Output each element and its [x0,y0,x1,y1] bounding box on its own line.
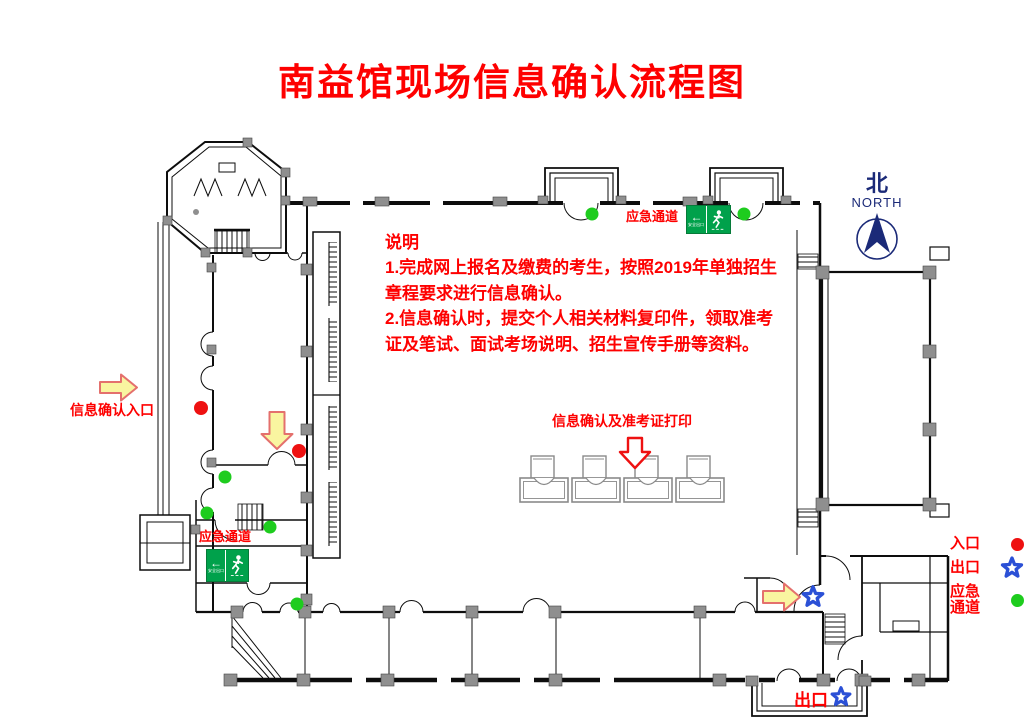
notes-body: 1.完成网上报名及缴费的考生，按照2019年单独招生 章程要求进行信息确认。 2… [385,255,785,357]
compass-icon [851,210,903,264]
exit-sign-top: ← 安全出口 [686,205,731,234]
north-indicator: 北 NORTH [842,172,912,269]
north-cn-label: 北 [842,172,912,196]
legend-exit-label: 出口 [950,560,980,576]
exit-star-marker [832,688,850,705]
confirmation-desks [520,456,724,502]
entrance-dot-marker [292,444,306,458]
exit-label-bottom: 出口 [794,686,828,711]
emergency-dot-marker [264,521,277,534]
exit-sign-text: 安全出口 [208,570,224,574]
exit-sign-arrow: ← 安全出口 [687,206,707,233]
left-arrow-icon: ← [210,557,222,569]
notes-block: 说明 1.完成网上报名及缴费的考生，按照2019年单独招生 章程要求进行信息确认… [385,231,785,357]
floor-plan-drawing [0,0,1024,724]
flowchart-page: 南益馆现场信息确认流程图 说明 1.完成网上报名及缴费的考生，按照2019年单独… [0,0,1024,724]
emergency-dot-marker [291,598,304,611]
desk [572,456,620,502]
exit-sign-text: 安全出口 [688,224,704,228]
running-man-icon [707,206,730,233]
entrance-arrow-icon [100,375,137,401]
page-title: 南益馆现场信息确认流程图 [0,52,1024,106]
left-arrow-icon: ← [690,211,702,223]
legend-entrance-label: 入口 [950,536,980,552]
legend-row-entrance: 入口 [950,536,1024,552]
legend-row-emergency: 应急 通道 [950,584,1024,616]
notes-heading: 说明 [385,231,785,255]
exit-sign-left: ← 安全出口 [206,549,249,582]
entrance-dot-marker [194,401,208,415]
emergency-dot-marker [586,208,599,221]
emergency-dot-icon [1011,594,1024,607]
building-walls [140,142,949,716]
emergency-label-left: 应急通道 [199,526,251,545]
entrance-dot-icon [1011,538,1024,551]
emergency-dot-marker [219,471,232,484]
legend: 入口 出口 应急 通道 [950,536,1024,616]
exit-sign-arrow: ← 安全出口 [207,550,226,581]
legend-row-exit: 出口 [950,556,1024,580]
confirm-area-label: 信息确认及准考证打印 [552,411,692,431]
desk [520,456,568,502]
emergency-dot-marker [738,208,751,221]
emergency-dot-marker [201,507,214,520]
legend-emergency-label: 应急 通道 [950,584,980,616]
corridor-down-arrow-icon [262,412,293,449]
desk [676,456,724,502]
entrance-label: 信息确认入口 [70,400,154,420]
exit-star-marker [803,587,822,605]
emergency-label-top: 应急通道 [626,206,678,225]
north-en-label: NORTH [842,196,912,210]
exit-star-icon [1000,556,1024,580]
running-man-icon [226,550,248,581]
